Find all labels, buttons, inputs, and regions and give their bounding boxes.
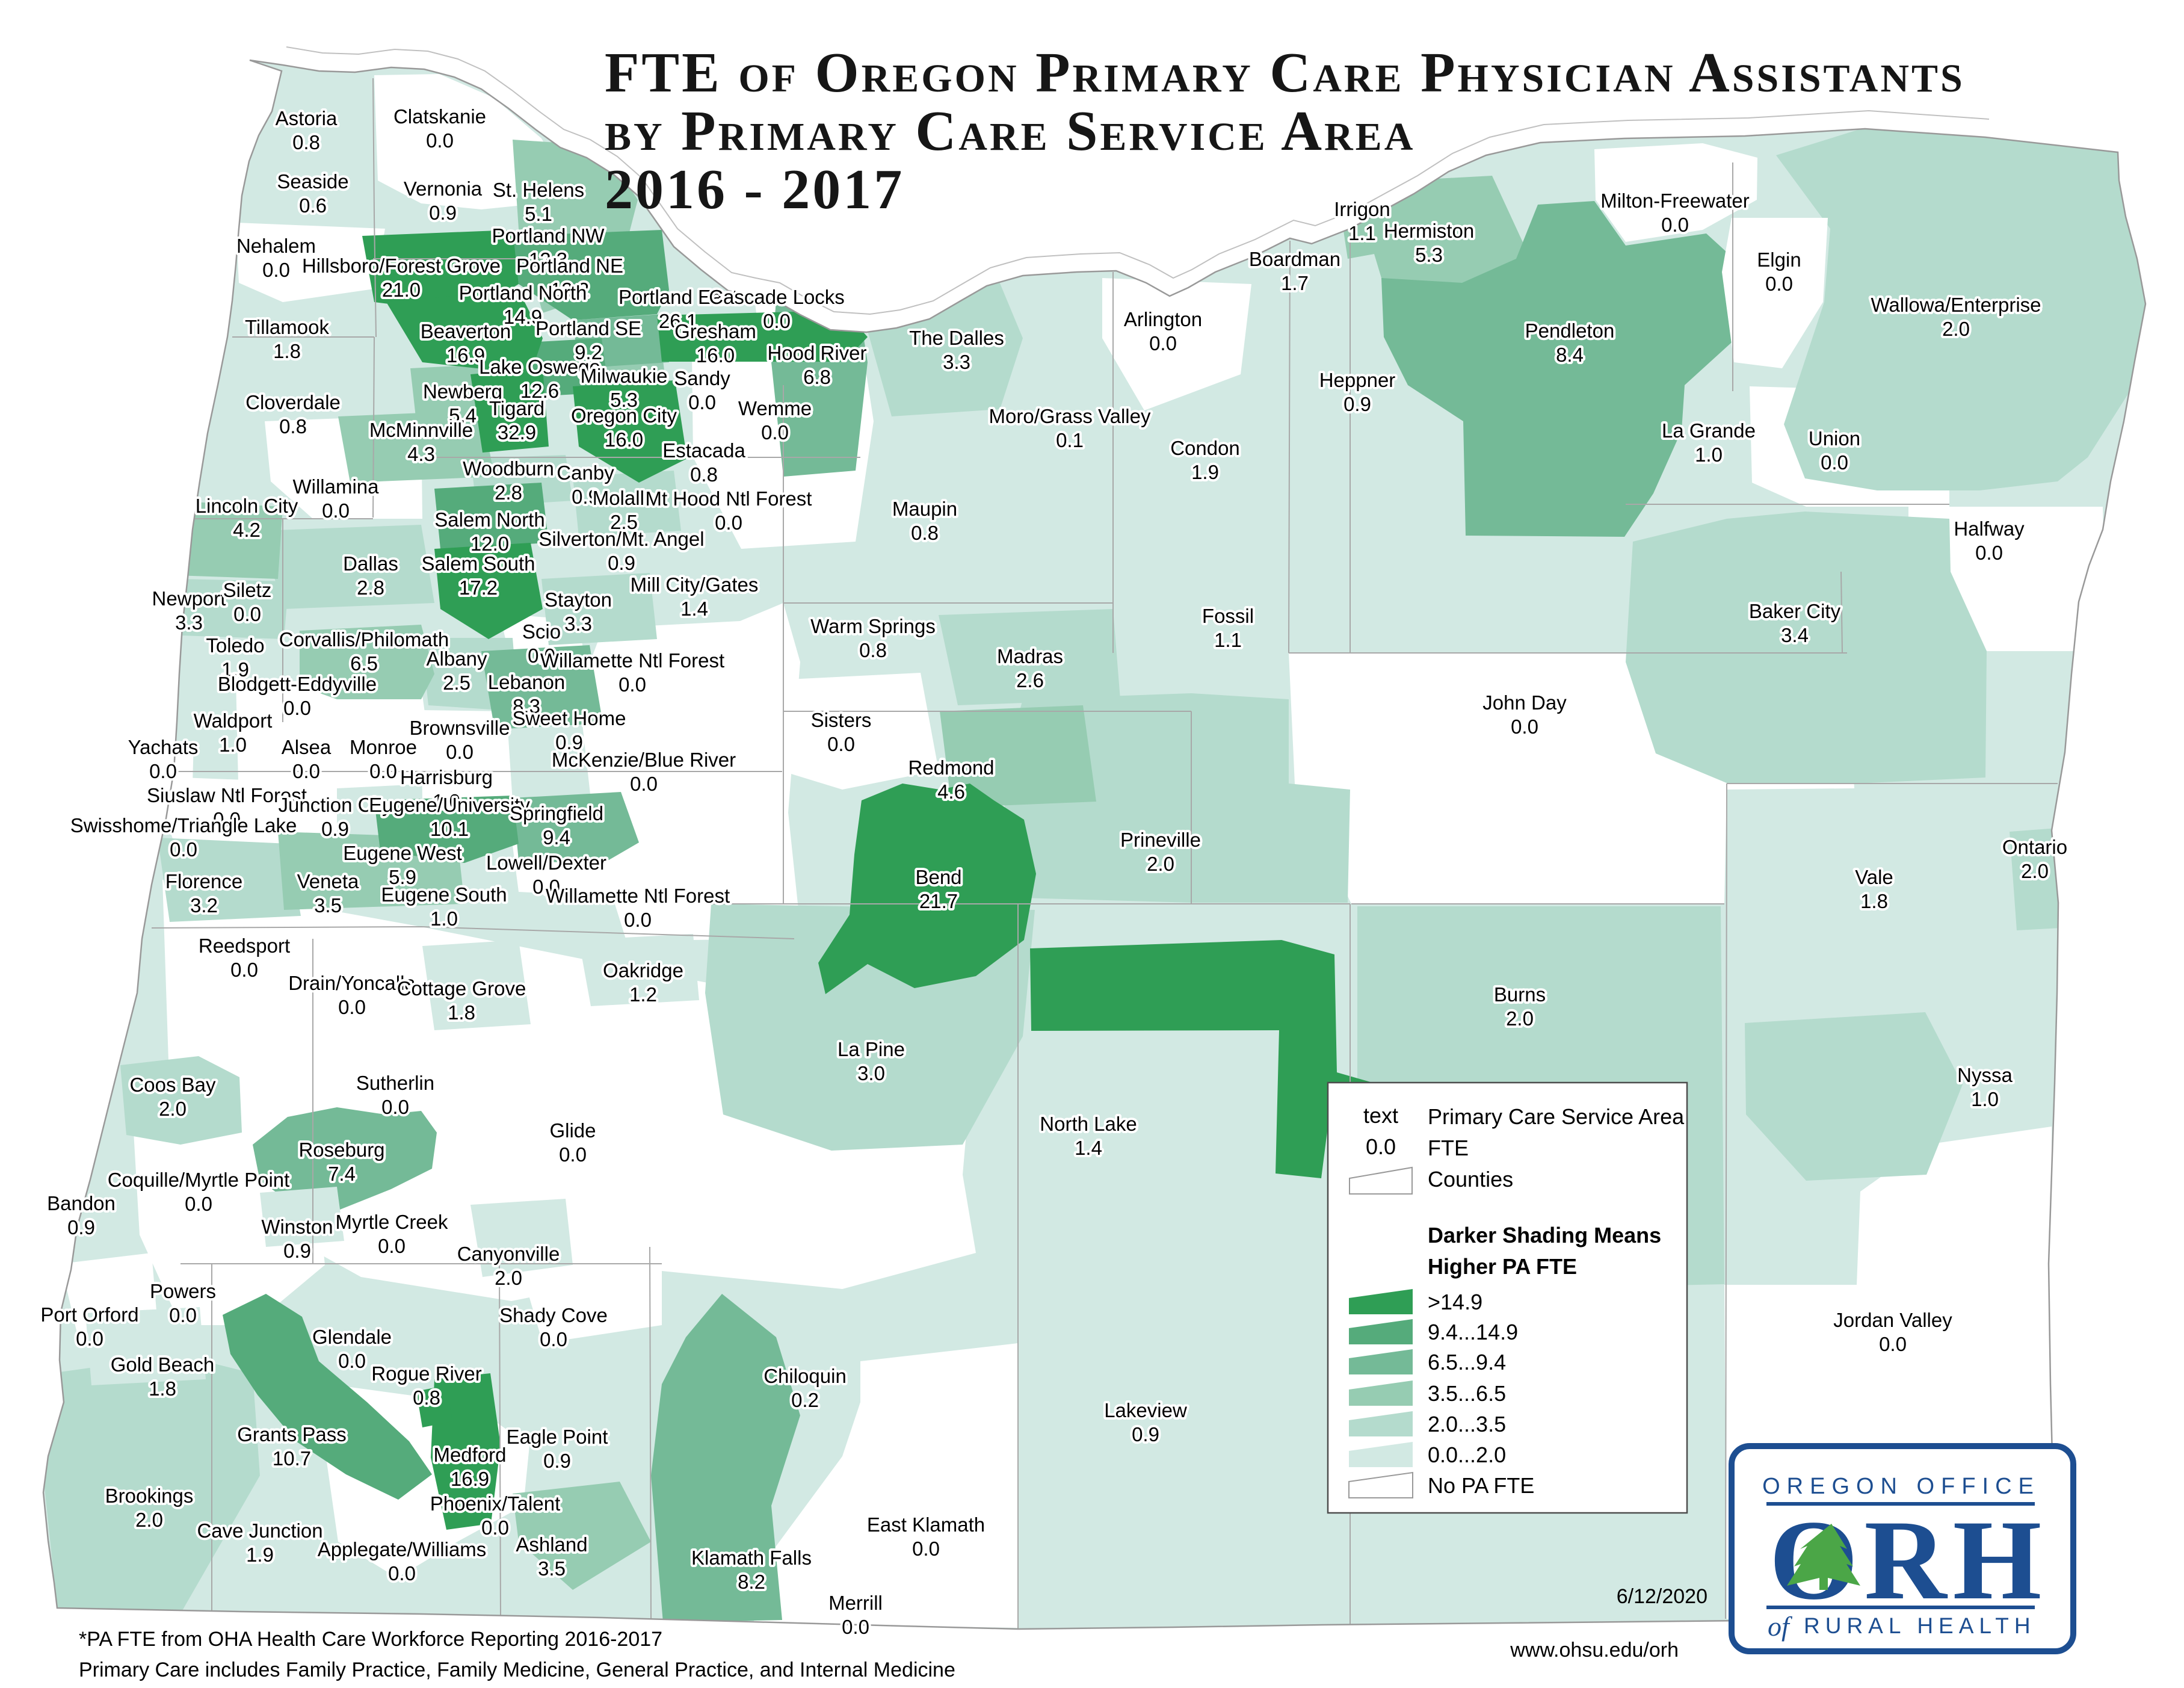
svg-text:Higher PA FTE: Higher PA FTE	[1428, 1254, 1577, 1279]
svg-text:Myrtle Creek: Myrtle Creek	[335, 1211, 448, 1233]
svg-text:8.2: 8.2	[738, 1571, 765, 1593]
svg-text:9.4: 9.4	[543, 826, 570, 849]
svg-text:0.0: 0.0	[1821, 451, 1848, 474]
svg-text:21.0: 21.0	[382, 279, 421, 301]
svg-text:Burns: Burns	[1494, 983, 1546, 1006]
svg-text:16.9: 16.9	[451, 1468, 489, 1490]
svg-text:Elgin: Elgin	[1757, 249, 1801, 271]
svg-text:Ontario: Ontario	[2002, 836, 2067, 858]
svg-text:5.1: 5.1	[525, 203, 552, 225]
svg-text:Counties: Counties	[1428, 1167, 1513, 1192]
svg-text:0.0: 0.0	[559, 1143, 587, 1166]
svg-text:Wemme: Wemme	[738, 397, 812, 419]
svg-text:www.ohsu.edu/orh: www.ohsu.edu/orh	[1510, 1639, 1679, 1662]
svg-text:0.0: 0.0	[1975, 542, 2003, 564]
svg-text:1.1: 1.1	[1214, 629, 1242, 651]
svg-text:The Dalles: The Dalles	[909, 327, 1004, 349]
svg-text:Swisshome/Triangle Lake: Swisshome/Triangle Lake	[70, 814, 297, 836]
svg-text:4.2: 4.2	[233, 519, 261, 541]
svg-text:0.0: 0.0	[618, 673, 646, 696]
svg-text:0.8: 0.8	[690, 463, 718, 486]
svg-text:Bandon: Bandon	[47, 1192, 116, 1214]
svg-text:FTE of Oregon Primary Care Phy: FTE of Oregon Primary Care Physician Ass…	[605, 42, 1965, 104]
svg-text:Willamina: Willamina	[292, 475, 379, 498]
svg-text:0.0: 0.0	[630, 773, 658, 795]
svg-text:Woodburn: Woodburn	[463, 457, 554, 480]
svg-text:Eugene South: Eugene South	[381, 883, 507, 906]
svg-text:0.0: 0.0	[540, 1328, 567, 1350]
svg-text:La Grande: La Grande	[1662, 419, 1756, 442]
svg-text:Eugene West: Eugene West	[343, 842, 462, 864]
svg-text:Vernonia: Vernonia	[404, 178, 483, 200]
svg-text:Seaside: Seaside	[277, 170, 348, 193]
svg-text:2.6: 2.6	[1016, 669, 1044, 691]
svg-text:1.9: 1.9	[246, 1544, 274, 1566]
svg-text:0.0: 0.0	[170, 838, 197, 861]
svg-text:4.6: 4.6	[937, 781, 965, 803]
svg-text:Eagle Point: Eagle Point	[507, 1426, 608, 1448]
svg-text:Phoenix/Talent: Phoenix/Talent	[430, 1492, 560, 1515]
svg-text:0.0: 0.0	[388, 1562, 416, 1584]
svg-text:0.9: 0.9	[1343, 393, 1371, 415]
svg-text:St. Helens: St. Helens	[493, 179, 584, 201]
svg-text:Medford: Medford	[433, 1444, 506, 1466]
svg-text:Pendleton: Pendleton	[1525, 320, 1615, 342]
svg-text:Sandy: Sandy	[674, 367, 730, 389]
svg-text:Vale: Vale	[1855, 866, 1893, 888]
svg-text:2.0: 2.0	[159, 1098, 187, 1120]
svg-text:16.0: 16.0	[605, 428, 643, 451]
svg-text:Condon: Condon	[1170, 437, 1240, 459]
svg-text:RURAL HEALTH: RURAL HEALTH	[1804, 1613, 2036, 1638]
svg-text:Brookings: Brookings	[105, 1485, 194, 1507]
svg-text:8.4: 8.4	[1556, 344, 1584, 366]
svg-text:Tigard: Tigard	[489, 397, 544, 419]
svg-text:Yachats: Yachats	[128, 736, 199, 758]
svg-text:Warm Springs: Warm Springs	[810, 615, 936, 637]
svg-text:4.3: 4.3	[407, 443, 435, 465]
svg-text:Stayton: Stayton	[544, 589, 612, 611]
svg-text:Cave Junction: Cave Junction	[197, 1520, 322, 1542]
svg-text:1.0: 1.0	[1695, 444, 1723, 466]
svg-text:Silverton/Mt. Angel: Silverton/Mt. Angel	[538, 528, 704, 550]
svg-text:Florence: Florence	[165, 870, 242, 892]
svg-text:0.0: 0.0	[624, 909, 652, 931]
svg-text:1.9: 1.9	[1191, 461, 1219, 483]
svg-text:Madras: Madras	[997, 645, 1063, 667]
svg-text:0.0: 0.0	[1879, 1333, 1907, 1355]
svg-text:No PA FTE: No PA FTE	[1428, 1473, 1534, 1498]
svg-text:Lincoln City: Lincoln City	[196, 495, 298, 517]
svg-text:Baker City: Baker City	[1749, 600, 1841, 622]
svg-text:Hillsboro/Forest Grove: Hillsboro/Forest Grove	[302, 255, 501, 277]
svg-text:0.9: 0.9	[608, 552, 635, 574]
svg-text:Gresham: Gresham	[674, 320, 756, 342]
svg-text:0.0: 0.0	[378, 1235, 406, 1257]
svg-text:Salem North: Salem North	[434, 509, 544, 531]
svg-text:Jordan Valley: Jordan Valley	[1833, 1309, 1952, 1331]
svg-text:3.0: 3.0	[857, 1062, 885, 1084]
svg-text:Moro/Grass Valley: Moro/Grass Valley	[989, 405, 1151, 427]
svg-text:1.1: 1.1	[1348, 222, 1376, 244]
svg-text:Darker Shading Means: Darker Shading Means	[1428, 1223, 1661, 1247]
svg-text:0.9: 0.9	[543, 1450, 571, 1472]
svg-text:0.0: 0.0	[369, 760, 397, 782]
svg-text:0.0: 0.0	[688, 391, 716, 413]
svg-text:0.0: 0.0	[1366, 1134, 1396, 1159]
svg-text:Wallowa/Enterprise: Wallowa/Enterprise	[1871, 294, 2041, 316]
svg-text:Willamette Ntl Forest: Willamette Ntl Forest	[546, 885, 730, 907]
svg-text:Applegate/Williams: Applegate/Williams	[318, 1538, 487, 1560]
svg-text:1.0: 1.0	[1971, 1088, 1999, 1110]
svg-text:0.0: 0.0	[292, 760, 320, 782]
svg-text:3.4: 3.4	[1781, 624, 1809, 646]
svg-text:2.0: 2.0	[1942, 318, 1970, 340]
svg-text:East Klamath: East Klamath	[867, 1513, 985, 1536]
svg-text:Arlington: Arlington	[1124, 308, 1202, 330]
svg-text:by Primary Care Service Area: by Primary Care Service Area	[605, 100, 1415, 162]
svg-text:Lowell/Dexter: Lowell/Dexter	[486, 852, 606, 874]
svg-text:Union: Union	[1809, 427, 1860, 450]
svg-text:Nyssa: Nyssa	[1957, 1064, 2013, 1086]
svg-text:Bend: Bend	[915, 866, 961, 888]
svg-text:Albany: Albany	[427, 648, 487, 670]
svg-text:1.8: 1.8	[448, 1001, 475, 1024]
svg-text:9.4...14.9: 9.4...14.9	[1428, 1320, 1518, 1344]
svg-text:Gold Beach: Gold Beach	[111, 1353, 214, 1376]
svg-text:0.1: 0.1	[1056, 429, 1084, 451]
svg-text:12.0: 12.0	[470, 533, 509, 555]
svg-text:0.6: 0.6	[299, 194, 327, 217]
svg-text:Glendale: Glendale	[312, 1326, 392, 1348]
svg-text:Mt Hood Ntl Forest: Mt Hood Ntl Forest	[646, 487, 812, 510]
svg-text:0.0: 0.0	[481, 1516, 509, 1539]
svg-text:2.8: 2.8	[357, 577, 384, 599]
svg-text:Coquille/Myrtle Point: Coquille/Myrtle Point	[108, 1169, 290, 1191]
svg-text:Tillamook: Tillamook	[245, 316, 329, 338]
svg-text:1.2: 1.2	[629, 983, 657, 1006]
svg-text:Harrisburg: Harrisburg	[400, 766, 493, 788]
svg-text:La Pine: La Pine	[838, 1038, 905, 1060]
svg-text:0.0: 0.0	[338, 1350, 366, 1372]
svg-text:0.8: 0.8	[292, 131, 320, 153]
svg-text:0.0: 0.0	[283, 697, 311, 719]
svg-text:1.7: 1.7	[1281, 272, 1309, 294]
svg-text:2.0: 2.0	[135, 1509, 163, 1531]
svg-text:Newport: Newport	[152, 587, 226, 610]
svg-text:0.0: 0.0	[426, 129, 454, 152]
svg-text:Nehalem: Nehalem	[236, 235, 316, 257]
svg-text:32.9: 32.9	[498, 421, 536, 444]
svg-text:0.8: 0.8	[859, 639, 887, 661]
svg-text:Halfway: Halfway	[1954, 518, 2025, 540]
svg-text:0.0: 0.0	[1765, 273, 1793, 295]
svg-text:Boardman: Boardman	[1249, 248, 1340, 270]
svg-text:6.5...9.4: 6.5...9.4	[1428, 1350, 1506, 1374]
svg-text:3.3: 3.3	[943, 351, 970, 373]
svg-text:Cottage Grove: Cottage Grove	[397, 977, 526, 1000]
svg-text:Salem South: Salem South	[422, 552, 535, 575]
svg-text:Alsea: Alsea	[282, 736, 332, 758]
svg-text:2.0: 2.0	[495, 1267, 522, 1289]
svg-text:Hood River: Hood River	[767, 342, 866, 364]
svg-text:7.4: 7.4	[328, 1163, 356, 1185]
svg-text:Maupin: Maupin	[892, 498, 957, 520]
svg-text:Fossil: Fossil	[1202, 605, 1254, 627]
svg-text:Rogue River: Rogue River	[371, 1362, 481, 1385]
svg-text:Reedsport: Reedsport	[199, 935, 290, 957]
svg-text:Oregon City: Oregon City	[571, 404, 677, 427]
svg-text:0.2: 0.2	[791, 1389, 819, 1411]
svg-text:Monroe: Monroe	[350, 736, 417, 758]
svg-text:FTE: FTE	[1428, 1136, 1469, 1160]
svg-text:Canyonville: Canyonville	[457, 1243, 560, 1265]
svg-text:Coos Bay: Coos Bay	[129, 1074, 216, 1096]
svg-text:3.5...6.5: 3.5...6.5	[1428, 1381, 1506, 1406]
svg-text:Waldport: Waldport	[194, 710, 273, 732]
svg-text:McKenzie/Blue River: McKenzie/Blue River	[552, 749, 736, 771]
svg-text:Blodgett-Eddyville: Blodgett-Eddyville	[218, 673, 377, 695]
svg-text:Portland SE: Portland SE	[535, 317, 641, 339]
svg-text:Winston: Winston	[261, 1216, 333, 1238]
svg-text:0.0: 0.0	[185, 1193, 212, 1215]
svg-text:1.0: 1.0	[219, 734, 247, 756]
svg-text:Shady Cove: Shady Cove	[499, 1304, 608, 1326]
svg-text:Portland NW: Portland NW	[492, 224, 605, 247]
svg-text:Powers: Powers	[150, 1280, 216, 1302]
svg-text:Springfield: Springfield	[510, 802, 603, 824]
svg-text:0.0: 0.0	[446, 741, 474, 763]
svg-text:0.0: 0.0	[322, 499, 350, 522]
svg-text:2.0: 2.0	[2021, 860, 2049, 882]
svg-text:0.0: 0.0	[262, 259, 290, 281]
svg-text:Port Orford: Port Orford	[40, 1303, 138, 1326]
svg-text:6/12/2020: 6/12/2020	[1617, 1585, 1707, 1608]
svg-text:17.2: 17.2	[459, 577, 498, 599]
svg-text:0.0: 0.0	[827, 733, 855, 755]
svg-text:0.0: 0.0	[381, 1096, 409, 1118]
svg-text:1.8: 1.8	[273, 340, 301, 362]
svg-text:Lebanon: Lebanon	[488, 671, 565, 693]
svg-text:Primary Care Service Area: Primary Care Service Area	[1428, 1104, 1685, 1129]
svg-text:Ashland: Ashland	[516, 1533, 587, 1556]
svg-text:Clatskanie: Clatskanie	[393, 105, 486, 128]
svg-text:Corvallis/Philomath: Corvallis/Philomath	[279, 628, 449, 651]
svg-text:2.5: 2.5	[443, 672, 470, 694]
svg-text:21.7: 21.7	[919, 890, 958, 912]
svg-text:Primary Care includes Family P: Primary Care includes Family Practice, F…	[79, 1659, 955, 1681]
svg-text:Brownsville: Brownsville	[410, 717, 510, 739]
svg-text:0.8: 0.8	[279, 415, 307, 437]
svg-text:0.0: 0.0	[912, 1538, 940, 1560]
svg-text:0.0: 0.0	[1511, 716, 1538, 738]
svg-text:Sisters: Sisters	[811, 709, 872, 731]
svg-text:6.8: 6.8	[803, 366, 831, 388]
svg-text:Portland North: Portland North	[459, 282, 587, 304]
svg-text:0.0: 0.0	[233, 603, 261, 625]
svg-text:Klamath Falls: Klamath Falls	[691, 1547, 812, 1569]
svg-text:10.7: 10.7	[273, 1447, 311, 1470]
svg-text:3.2: 3.2	[190, 894, 218, 917]
svg-text:Canby: Canby	[557, 462, 614, 484]
svg-text:text: text	[1363, 1103, 1398, 1128]
svg-text:0.9: 0.9	[67, 1216, 95, 1238]
svg-text:0.0: 0.0	[169, 1304, 197, 1326]
svg-text:Heppner: Heppner	[1319, 369, 1396, 391]
svg-text:of: of	[1768, 1611, 1793, 1642]
svg-text:Mill City/Gates: Mill City/Gates	[631, 573, 759, 596]
svg-text:3.5: 3.5	[538, 1557, 566, 1580]
svg-text:0.0: 0.0	[76, 1328, 103, 1350]
svg-text:Portland NE: Portland NE	[516, 255, 623, 277]
svg-text:0.9: 0.9	[283, 1240, 311, 1262]
svg-text:0.0: 0.0	[338, 996, 366, 1018]
svg-text:0.8: 0.8	[911, 522, 939, 544]
svg-text:10.1: 10.1	[430, 818, 469, 840]
svg-text:0.9: 0.9	[1132, 1423, 1159, 1445]
svg-text:*PA FTE from OHA Health Care W: *PA FTE from OHA Health Care Workforce R…	[79, 1628, 662, 1651]
svg-text:McMinnville: McMinnville	[369, 419, 473, 441]
svg-text:0.0: 0.0	[761, 421, 789, 444]
svg-text:0.9: 0.9	[429, 202, 457, 224]
svg-text:>14.9: >14.9	[1428, 1290, 1482, 1314]
svg-text:0.9: 0.9	[321, 818, 349, 840]
svg-text:1.4: 1.4	[680, 598, 708, 620]
svg-text:0.0: 0.0	[149, 760, 177, 782]
svg-text:16.0: 16.0	[696, 344, 735, 366]
svg-text:Dallas: Dallas	[343, 552, 398, 575]
svg-text:0.0: 0.0	[1149, 332, 1177, 354]
svg-text:Chiloquin: Chiloquin	[763, 1365, 847, 1387]
svg-text:3.3: 3.3	[175, 611, 203, 634]
svg-text:Willamette Ntl Forest: Willamette Ntl Forest	[540, 649, 724, 672]
svg-text:Lakeview: Lakeview	[1104, 1399, 1187, 1421]
svg-text:2.0...3.5: 2.0...3.5	[1428, 1412, 1506, 1436]
svg-text:Estacada: Estacada	[662, 439, 745, 462]
svg-text:0.0...2.0: 0.0...2.0	[1428, 1442, 1506, 1467]
svg-text:Veneta: Veneta	[297, 870, 359, 892]
svg-text:Irrigon: Irrigon	[1334, 198, 1390, 220]
svg-text:Glide: Glide	[549, 1119, 596, 1142]
svg-text:Sweet Home: Sweet Home	[513, 707, 626, 729]
svg-text:2.0: 2.0	[1147, 853, 1174, 875]
svg-text:Oakridge: Oakridge	[603, 959, 683, 982]
svg-text:0.0: 0.0	[715, 512, 742, 534]
svg-text:6.5: 6.5	[350, 652, 378, 675]
svg-text:Milwaukie: Milwaukie	[581, 365, 668, 387]
svg-text:0.0: 0.0	[230, 959, 258, 981]
svg-text:0.0: 0.0	[1661, 214, 1689, 236]
svg-text:2016 - 2017: 2016 - 2017	[605, 158, 904, 221]
svg-text:5.3: 5.3	[1415, 244, 1443, 266]
svg-text:1.0: 1.0	[430, 907, 458, 930]
svg-text:3.5: 3.5	[314, 894, 342, 917]
svg-text:Eugene/University: Eugene/University	[369, 794, 530, 816]
svg-text:John Day: John Day	[1482, 691, 1567, 714]
svg-text:Siletz: Siletz	[223, 579, 272, 601]
svg-text:0.0: 0.0	[763, 310, 791, 332]
svg-text:Prineville: Prineville	[1120, 829, 1201, 851]
svg-text:2.8: 2.8	[495, 481, 522, 504]
svg-text:Toledo: Toledo	[206, 634, 264, 657]
svg-text:OREGON OFFICE: OREGON OFFICE	[1762, 1474, 2040, 1499]
svg-text:1.8: 1.8	[1860, 890, 1888, 912]
svg-text:Beaverton: Beaverton	[421, 320, 511, 342]
svg-text:Sutherlin: Sutherlin	[356, 1072, 434, 1094]
svg-text:Grants Pass: Grants Pass	[237, 1423, 347, 1445]
svg-text:3.3: 3.3	[564, 613, 592, 635]
svg-text:0.8: 0.8	[413, 1387, 440, 1409]
svg-text:North Lake: North Lake	[1040, 1113, 1137, 1135]
svg-text:2.0: 2.0	[1506, 1007, 1534, 1030]
svg-text:Roseburg: Roseburg	[298, 1139, 384, 1161]
svg-text:Milton-Freewater: Milton-Freewater	[1600, 190, 1750, 212]
svg-text:Astoria: Astoria	[276, 107, 338, 129]
svg-text:0.0: 0.0	[842, 1616, 869, 1638]
svg-text:1.4: 1.4	[1075, 1137, 1102, 1159]
svg-text:Hermiston: Hermiston	[1384, 220, 1474, 242]
svg-text:Cascade Locks: Cascade Locks	[709, 286, 845, 308]
svg-text:Redmond: Redmond	[908, 756, 994, 779]
svg-text:Scio: Scio	[522, 620, 561, 643]
svg-text:1.8: 1.8	[149, 1377, 176, 1400]
svg-text:Cloverdale: Cloverdale	[245, 391, 341, 413]
svg-text:Merrill: Merrill	[828, 1592, 883, 1614]
